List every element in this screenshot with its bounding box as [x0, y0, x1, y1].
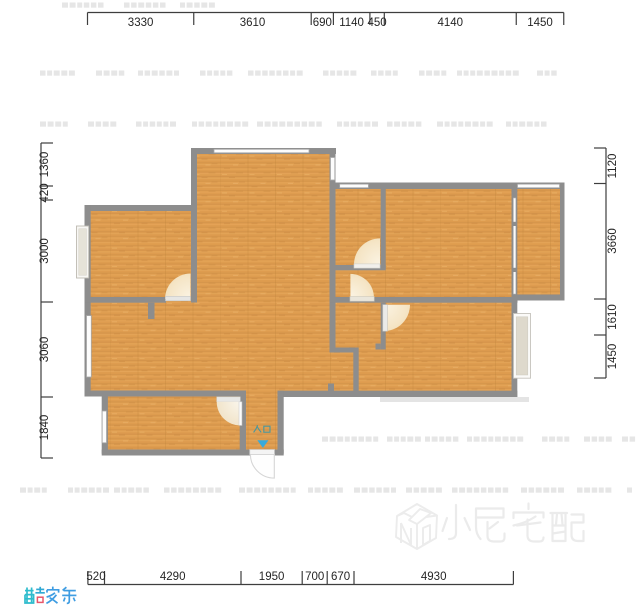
svg-text:520: 520	[86, 571, 105, 583]
svg-text:4290: 4290	[160, 571, 186, 583]
svg-text:450: 450	[368, 17, 387, 29]
svg-text:1840: 1840	[39, 415, 51, 441]
svg-text:690: 690	[313, 17, 332, 29]
svg-text:1120: 1120	[607, 154, 619, 179]
svg-text:4140: 4140	[438, 17, 464, 29]
svg-text:1950: 1950	[259, 571, 285, 583]
svg-text:3000: 3000	[39, 238, 51, 264]
svg-text:1450: 1450	[527, 17, 553, 29]
svg-text:1610: 1610	[607, 304, 619, 330]
svg-text:3610: 3610	[240, 17, 266, 29]
svg-text:1140: 1140	[339, 17, 364, 29]
svg-text:700: 700	[305, 571, 324, 583]
svg-text:670: 670	[331, 571, 350, 583]
svg-text:1360: 1360	[39, 152, 51, 178]
svg-text:4930: 4930	[421, 571, 447, 583]
svg-text:420: 420	[39, 183, 51, 202]
svg-text:3660: 3660	[607, 228, 619, 254]
svg-text:3330: 3330	[128, 17, 154, 29]
svg-text:3060: 3060	[39, 337, 51, 363]
svg-text:1450: 1450	[607, 344, 619, 370]
